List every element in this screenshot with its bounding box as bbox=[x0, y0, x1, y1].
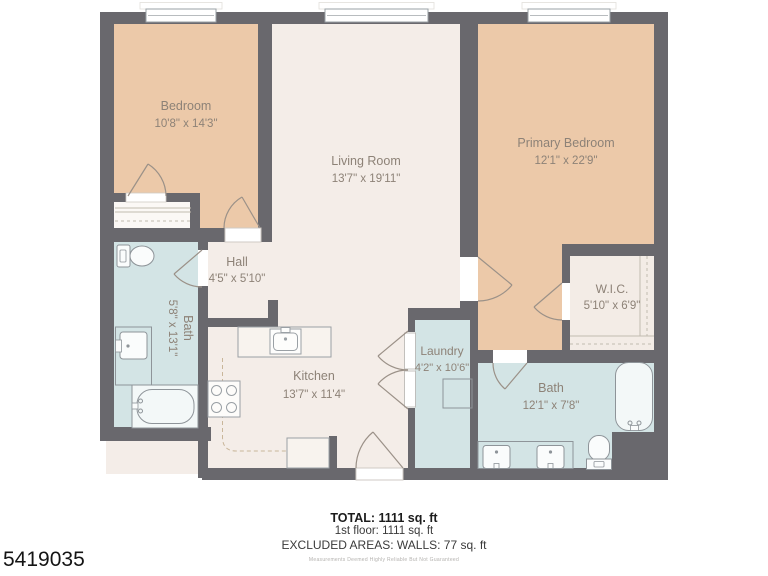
wall-wic-left-lower bbox=[562, 320, 570, 350]
wall-laundry-top bbox=[408, 308, 478, 320]
wall-bedroom-living bbox=[258, 24, 272, 242]
laundry-label: Laundry bbox=[420, 344, 463, 358]
wic-door-threshold bbox=[562, 283, 570, 320]
entry-door-threshold bbox=[356, 468, 403, 480]
bedroom-label: Bedroom bbox=[161, 99, 212, 113]
wall-bath2-corner-block bbox=[612, 432, 654, 468]
bath2-door-threshold bbox=[493, 350, 527, 363]
window-living bbox=[319, 3, 434, 23]
wall-laundry-right bbox=[470, 320, 478, 468]
window-primary bbox=[522, 3, 616, 23]
kitchen-counter-bottom bbox=[287, 438, 329, 468]
wall-hall-bottom bbox=[198, 318, 278, 327]
wic-dims: 5'10" x 6'9" bbox=[584, 300, 641, 312]
bath2-label: Bath bbox=[538, 381, 564, 395]
disclaimer-text: Measurements Deemed Highly Reliable But … bbox=[0, 557, 768, 563]
laundry-door-panel-upper bbox=[405, 333, 416, 369]
total-area-text: TOTAL: 1111 sq. ft bbox=[0, 511, 768, 525]
wall-laundry-left-lower bbox=[408, 408, 415, 468]
primary-door-threshold bbox=[460, 257, 478, 301]
laundry-door-panel-lower bbox=[405, 371, 416, 407]
first-floor-area-text: 1st floor: 1111 sq. ft bbox=[0, 525, 768, 538]
listing-id: 5419035 bbox=[3, 548, 85, 572]
wall-laundry-left-upper bbox=[408, 320, 415, 332]
bath1-door-threshold bbox=[198, 250, 208, 286]
floor-plan-page: Bedroom 10'8" x 14'3" Living Room 13'7" … bbox=[0, 0, 768, 576]
wic-label: W.I.C. bbox=[596, 282, 629, 296]
wall-hall-stub bbox=[268, 300, 278, 318]
kitchen-dims: 13'7" x 11'4" bbox=[283, 389, 345, 401]
wall-left bbox=[100, 12, 114, 441]
wall-closet-right bbox=[190, 202, 200, 228]
bath2-dims: 12'1" x 7'8" bbox=[523, 400, 580, 412]
closet-door-threshold bbox=[126, 193, 166, 202]
bathtub-bath2 bbox=[616, 363, 653, 431]
wall-right bbox=[654, 12, 668, 480]
double-sink-right bbox=[537, 446, 564, 469]
window-bedroom bbox=[140, 3, 222, 23]
kitchen-sink bbox=[270, 328, 301, 355]
excluded-areas-text: EXCLUDED AREAS: WALLS: 77 sq. ft bbox=[0, 538, 768, 552]
bedroom-door-threshold bbox=[225, 228, 261, 242]
wall-bath1-bottom bbox=[100, 427, 211, 441]
closet-floor bbox=[114, 202, 192, 228]
kitchen-label: Kitchen bbox=[293, 369, 335, 383]
area-summary: TOTAL: 1111 sq. ft 1st floor: 1111 sq. f… bbox=[0, 511, 768, 563]
toilet-fixture-bath2 bbox=[587, 436, 612, 470]
living-room-label: Living Room bbox=[331, 154, 400, 168]
hall-dims: 4'5" x 5'10" bbox=[209, 273, 266, 285]
living-room-dims: 13'7" x 19'11" bbox=[332, 173, 401, 185]
toilet-fixture-bath1 bbox=[117, 245, 154, 267]
bathtub-bath1 bbox=[132, 385, 198, 428]
primary-bedroom-dims: 12'1" x 22'9" bbox=[534, 155, 597, 167]
bath1-dims: 5'8" x 13'1" bbox=[166, 300, 178, 357]
floor-plan-drawing: Bedroom 10'8" x 14'3" Living Room 13'7" … bbox=[0, 0, 768, 576]
hall-label: Hall bbox=[226, 255, 248, 269]
wall-wic-top bbox=[562, 244, 654, 256]
wall-kitchen-stub bbox=[329, 436, 337, 468]
wall-wic-left-upper bbox=[562, 244, 570, 283]
windows bbox=[140, 3, 616, 23]
bath1-label: Bath bbox=[181, 315, 195, 341]
laundry-dims: 4'2" x 10'6" bbox=[415, 362, 469, 374]
primary-bedroom-label: Primary Bedroom bbox=[517, 136, 614, 150]
bedroom-dims: 10'8" x 14'3" bbox=[154, 118, 217, 130]
stove bbox=[208, 381, 240, 417]
double-sink-left bbox=[483, 446, 510, 469]
